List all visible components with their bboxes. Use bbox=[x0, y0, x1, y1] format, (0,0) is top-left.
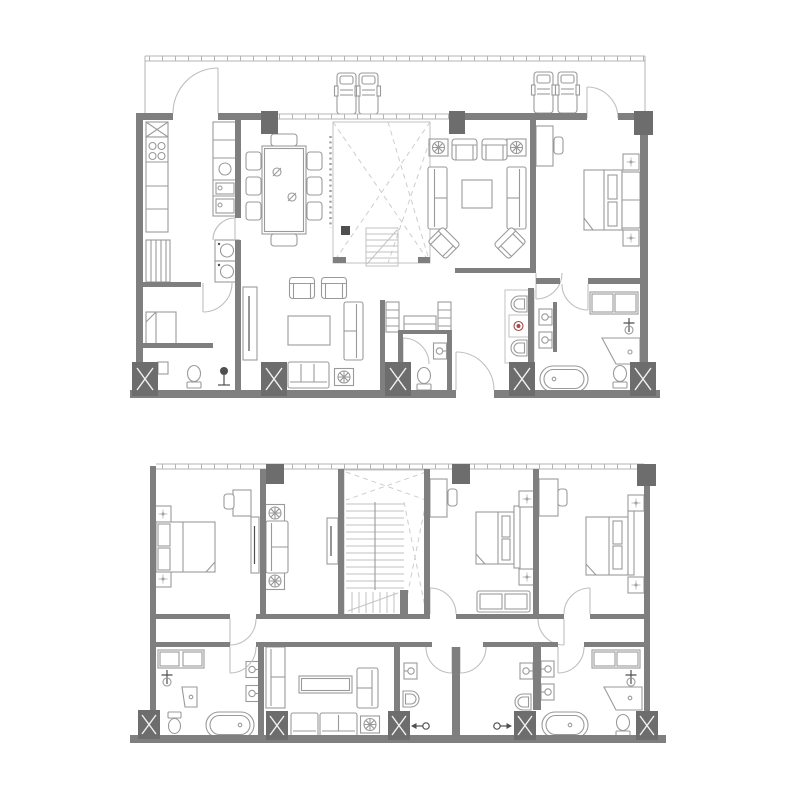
armchair bbox=[290, 278, 315, 299]
toilet bbox=[511, 340, 527, 356]
armchair bbox=[322, 278, 347, 299]
diagonal-armchair bbox=[494, 227, 527, 260]
linen-closet bbox=[438, 302, 451, 332]
plant-side-table bbox=[507, 139, 526, 156]
void-and-stair bbox=[331, 122, 431, 266]
sofa bbox=[507, 167, 526, 229]
toilet bbox=[511, 296, 527, 312]
double-bed bbox=[156, 522, 215, 572]
upper-floor-plan bbox=[130, 56, 660, 398]
desk bbox=[430, 479, 447, 517]
vanity-cabinet bbox=[592, 650, 640, 668]
double-bed bbox=[584, 170, 622, 230]
wall-sink bbox=[520, 663, 533, 679]
maid-door-arc bbox=[203, 283, 232, 312]
tv-console bbox=[243, 287, 257, 360]
bedroom-right bbox=[539, 479, 644, 614]
counter-run bbox=[146, 137, 168, 232]
solid-column bbox=[449, 111, 465, 134]
nightstand bbox=[519, 569, 535, 585]
double-bed bbox=[586, 517, 628, 575]
coffee-table bbox=[288, 316, 330, 345]
terrace-door-left bbox=[173, 68, 218, 113]
nightstand bbox=[623, 154, 639, 170]
wall-sink bbox=[539, 309, 552, 325]
lower-plan-walls bbox=[130, 464, 666, 743]
wall-sink bbox=[434, 343, 447, 359]
shaft-column-x bbox=[514, 711, 536, 740]
corridor bbox=[230, 619, 564, 645]
maid-room bbox=[146, 283, 232, 388]
shower-room-left bbox=[403, 647, 452, 729]
window-band bbox=[278, 114, 449, 119]
lounge-chair bbox=[532, 72, 556, 113]
dining-chair bbox=[246, 177, 261, 195]
nightstand bbox=[155, 506, 171, 522]
headboard bbox=[628, 511, 634, 575]
floor-plan-drawing bbox=[0, 0, 800, 800]
dining-chair bbox=[271, 234, 297, 246]
faucet-stand-icon bbox=[624, 318, 635, 334]
bench-sofa bbox=[288, 362, 329, 388]
shower-door-arc bbox=[460, 647, 486, 673]
shower-tray bbox=[602, 338, 640, 364]
nightstand bbox=[155, 571, 171, 587]
floor-plan-page bbox=[0, 0, 800, 800]
bath-door-arc bbox=[558, 647, 584, 673]
sofa bbox=[320, 713, 357, 737]
dining-chair bbox=[271, 134, 297, 146]
desk bbox=[536, 126, 553, 166]
nightstand bbox=[628, 495, 644, 511]
wall-sink bbox=[541, 684, 554, 700]
wall-sink bbox=[246, 686, 259, 702]
dining-chair bbox=[307, 202, 322, 220]
red-accent-basin bbox=[509, 315, 529, 337]
plant-side-table bbox=[266, 505, 285, 522]
shower-tray bbox=[604, 687, 642, 710]
kitchen-door-arc bbox=[213, 218, 235, 240]
toilet bbox=[613, 366, 627, 389]
sofa bbox=[428, 167, 447, 229]
single-bed bbox=[146, 312, 176, 346]
shaft-column-x bbox=[138, 710, 160, 739]
bedroom-door-arc bbox=[430, 588, 456, 614]
stair-hall bbox=[344, 470, 428, 615]
plant-side-table bbox=[335, 369, 354, 386]
solid-column bbox=[266, 464, 284, 484]
wardrobe bbox=[327, 518, 338, 564]
foot-bench bbox=[477, 591, 530, 612]
living-room bbox=[428, 139, 527, 259]
bedroom-left bbox=[155, 490, 259, 587]
shower-spray-icon bbox=[494, 723, 512, 729]
desk-chair bbox=[554, 137, 563, 154]
shaft-column-x bbox=[261, 362, 287, 396]
bedroom-door-arc bbox=[564, 588, 590, 614]
shaft-column-x bbox=[509, 362, 535, 396]
sitting-nook bbox=[266, 505, 339, 590]
dining-chair bbox=[246, 202, 261, 220]
terrace-door-right bbox=[587, 87, 618, 118]
desk bbox=[539, 479, 558, 516]
suite-door-arc bbox=[536, 273, 562, 299]
nightstand bbox=[623, 230, 639, 246]
headboard bbox=[514, 506, 520, 568]
island-counter bbox=[213, 122, 237, 216]
shaft-column-x bbox=[266, 711, 288, 740]
dining-area bbox=[246, 134, 322, 246]
sofa bbox=[291, 713, 318, 737]
plant-side-table bbox=[361, 716, 380, 733]
faucet-stand-icon bbox=[626, 670, 637, 686]
double-bed bbox=[476, 512, 514, 564]
desk-chair bbox=[224, 494, 234, 509]
solid-column bbox=[634, 111, 653, 135]
toilet bbox=[403, 691, 419, 707]
bathroom-left bbox=[158, 647, 259, 738]
solid-column bbox=[637, 464, 656, 486]
bedroom-middle bbox=[430, 479, 535, 614]
shaft-column-x bbox=[388, 711, 410, 740]
vanity-cabinet bbox=[158, 650, 204, 668]
corridor-door-arc bbox=[538, 619, 564, 645]
dining-chair bbox=[307, 177, 322, 195]
shower-spray-icon bbox=[411, 723, 429, 729]
lounge-chair bbox=[357, 73, 381, 114]
plant-side-table bbox=[429, 139, 448, 156]
landing-flight bbox=[348, 592, 398, 613]
master-bathroom-lower bbox=[541, 647, 642, 738]
toilet bbox=[187, 366, 201, 389]
desk-chair bbox=[448, 489, 457, 506]
shaft-column-x bbox=[132, 362, 158, 396]
wall-sink bbox=[541, 661, 554, 677]
shower-drain-icon bbox=[218, 367, 230, 385]
lounge-chair bbox=[335, 73, 359, 114]
master-bedroom bbox=[536, 126, 640, 299]
stair-flight bbox=[366, 228, 398, 266]
dining-chair bbox=[246, 152, 261, 170]
corridor-door-arc bbox=[230, 619, 256, 645]
window-band bbox=[156, 464, 644, 469]
vanity-cabinet bbox=[590, 292, 638, 314]
bath-door-arc bbox=[562, 284, 588, 310]
terrace bbox=[145, 56, 645, 118]
entry-door-arc bbox=[456, 352, 494, 390]
u-stair-treads bbox=[346, 502, 404, 590]
armchair bbox=[452, 139, 477, 160]
bathtub bbox=[540, 366, 588, 392]
kitchen bbox=[146, 122, 239, 282]
newel-post bbox=[341, 226, 350, 235]
bathtub bbox=[206, 712, 254, 738]
cabinet bbox=[158, 362, 168, 374]
shower-door-arc bbox=[426, 647, 452, 673]
solid-column bbox=[261, 111, 278, 134]
diagonal-armchair bbox=[428, 227, 461, 260]
wall-sink bbox=[246, 662, 259, 678]
sofa bbox=[357, 668, 378, 708]
toilet bbox=[168, 712, 181, 734]
faucet-stand-icon bbox=[162, 670, 173, 686]
coffee-table bbox=[462, 180, 492, 208]
desk-chair bbox=[558, 489, 567, 506]
shaft-column-x bbox=[630, 362, 656, 396]
shaft-column-x bbox=[636, 711, 658, 740]
toilet bbox=[417, 368, 431, 391]
desk bbox=[233, 490, 251, 516]
toilet bbox=[616, 715, 630, 738]
dining-table bbox=[262, 146, 306, 234]
nightstand bbox=[519, 491, 535, 507]
lower-floor-plan bbox=[130, 464, 666, 743]
bathtub bbox=[542, 712, 588, 738]
armchair bbox=[482, 139, 507, 160]
toilet bbox=[515, 694, 531, 710]
dining-chair bbox=[307, 152, 322, 170]
plant-side-table bbox=[266, 573, 285, 590]
loveseat bbox=[266, 521, 288, 573]
shower-tray bbox=[182, 687, 197, 707]
hall-bath-door-arc bbox=[403, 338, 429, 364]
upper-plan-walls bbox=[130, 111, 660, 398]
sofa bbox=[344, 302, 363, 360]
solid-column bbox=[452, 464, 470, 484]
linen-closet bbox=[386, 302, 399, 332]
lounge-chair bbox=[556, 72, 580, 113]
wall-sink bbox=[539, 332, 552, 348]
wall-sink bbox=[404, 663, 417, 679]
terrace-railing bbox=[145, 56, 645, 61]
nightstand bbox=[628, 577, 644, 593]
shaft-column-x bbox=[385, 362, 411, 396]
